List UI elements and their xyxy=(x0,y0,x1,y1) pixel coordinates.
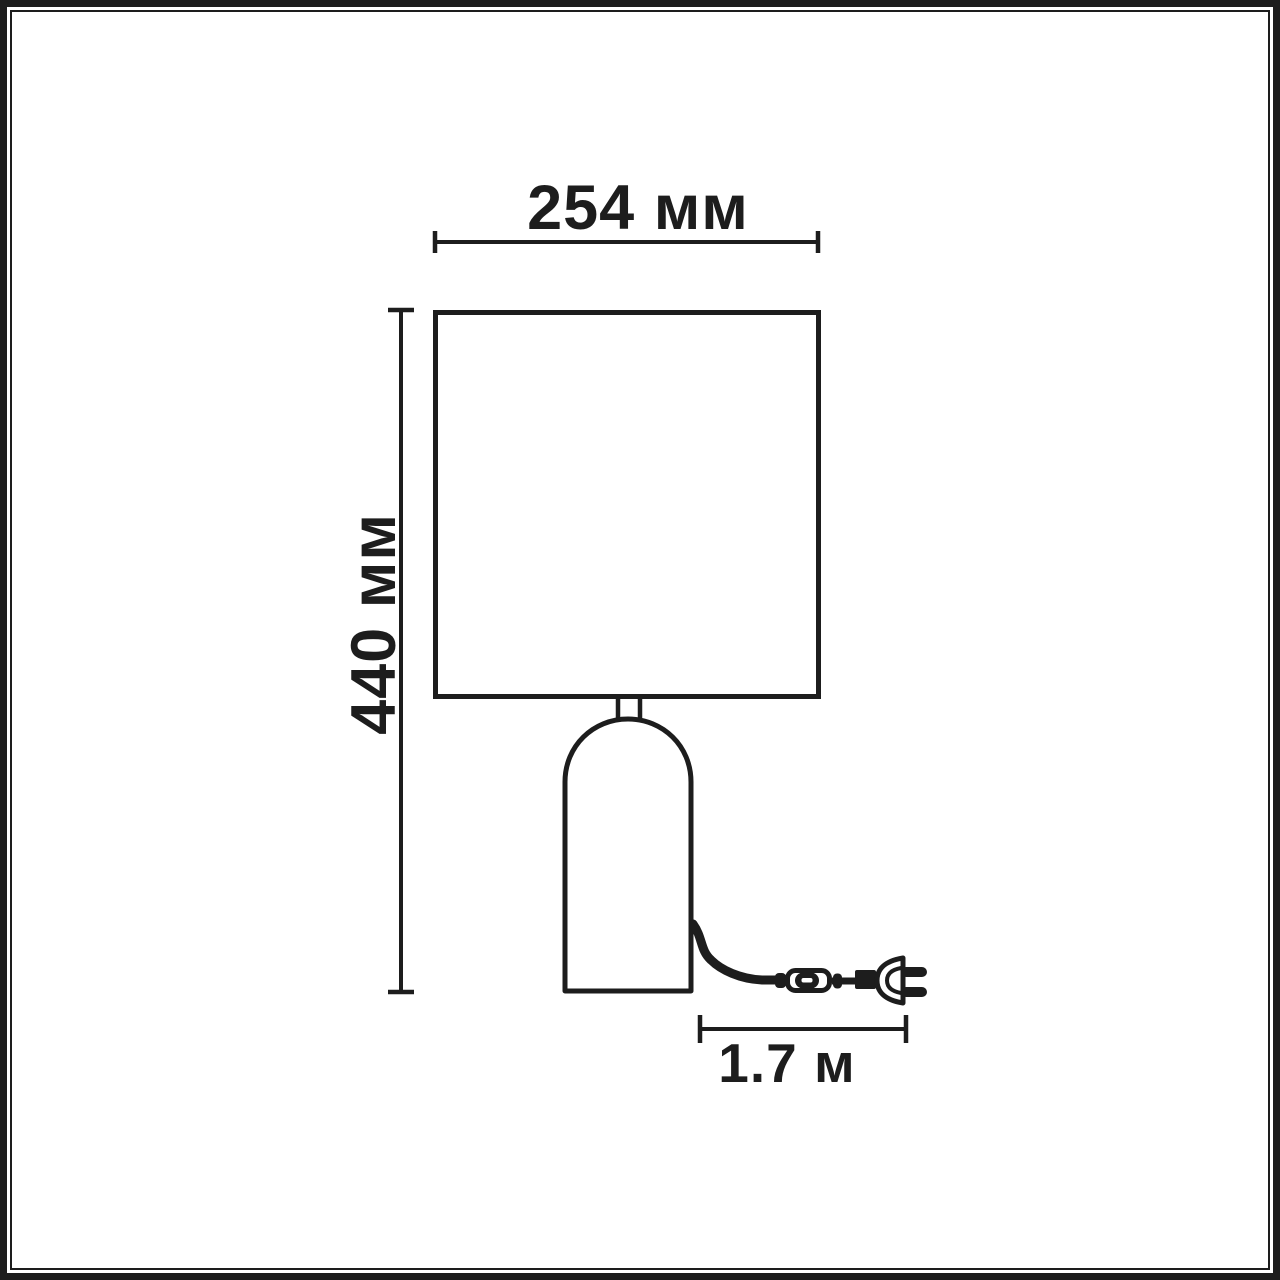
height-label: 440 мм xyxy=(339,513,409,735)
cord-collar-left xyxy=(775,973,786,988)
plug-prong-top xyxy=(901,967,927,977)
switch-rocker-mark xyxy=(802,978,813,983)
plug-boot xyxy=(855,970,876,989)
cord-collar-mid xyxy=(833,974,842,989)
lampshade xyxy=(436,313,819,697)
lamp-base xyxy=(565,719,691,991)
plug-prong-bottom xyxy=(901,987,927,997)
dimension-diagram: 254 мм 440 мм 1.7 м xyxy=(0,0,1280,1280)
plug-bell xyxy=(877,958,903,1003)
cord-switch xyxy=(788,971,830,991)
width-label: 254 мм xyxy=(527,173,749,243)
cord-length-label: 1.7 м xyxy=(718,1032,855,1094)
